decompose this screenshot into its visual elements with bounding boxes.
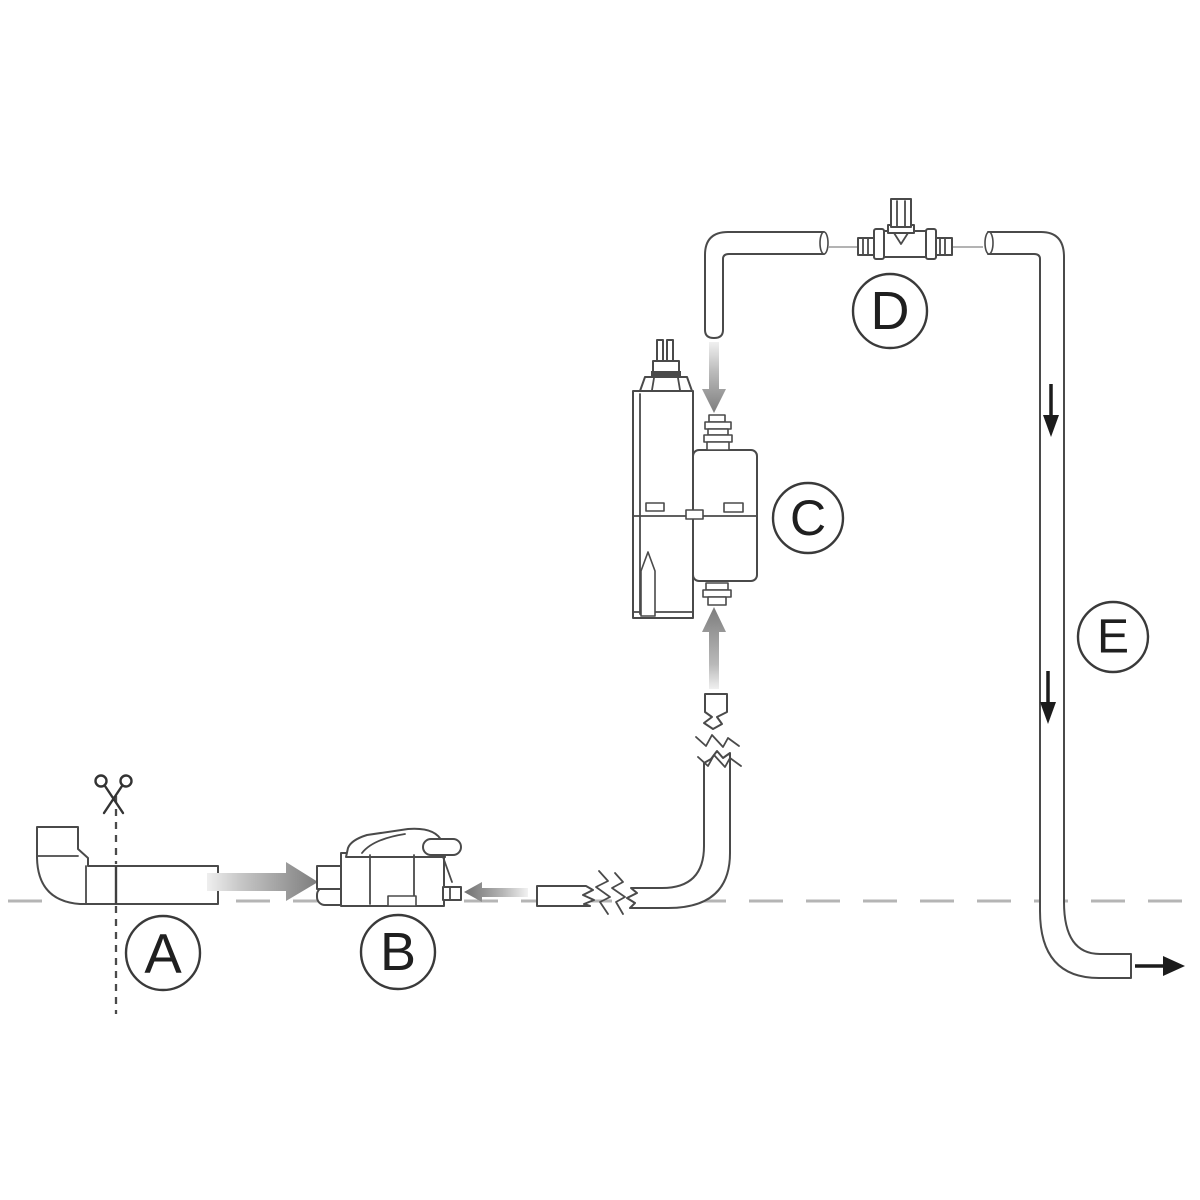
- d-valve-stem: [891, 199, 911, 227]
- label-b-text: B: [380, 922, 416, 982]
- b-lid-latch: [423, 839, 461, 855]
- label-a-text: A: [144, 922, 182, 985]
- c-vent-slot: [724, 503, 743, 512]
- tube-open-end: [820, 232, 828, 254]
- part-label-b: B: [361, 915, 435, 989]
- d-left-barb: [858, 238, 875, 255]
- part-label-c: C: [773, 483, 843, 553]
- c-bottom-barb-port: [703, 583, 731, 605]
- part-label-d: D: [853, 274, 927, 348]
- part-label-e: E: [1078, 602, 1148, 672]
- pipe-open-end: [985, 232, 993, 254]
- hose-segment-b-side: [537, 886, 594, 906]
- c-vent-slot: [646, 503, 664, 511]
- c-cable-prong: [657, 340, 663, 363]
- d-valve-body: [884, 231, 926, 257]
- diagram-canvas: A B C D E: [0, 0, 1200, 1200]
- b-outlet-barb: [443, 887, 461, 900]
- b-inlet-port: [317, 866, 343, 889]
- d-right-barb: [935, 238, 952, 255]
- label-e-text: E: [1097, 611, 1129, 664]
- label-d-text: D: [871, 281, 910, 341]
- background: [0, 0, 1200, 1200]
- part-label-a: A: [126, 916, 200, 990]
- label-c-text: C: [790, 490, 826, 546]
- c-cable-prong: [667, 340, 673, 363]
- c-motor-cap: [640, 377, 692, 391]
- installation-diagram: A B C D E: [0, 0, 1200, 1200]
